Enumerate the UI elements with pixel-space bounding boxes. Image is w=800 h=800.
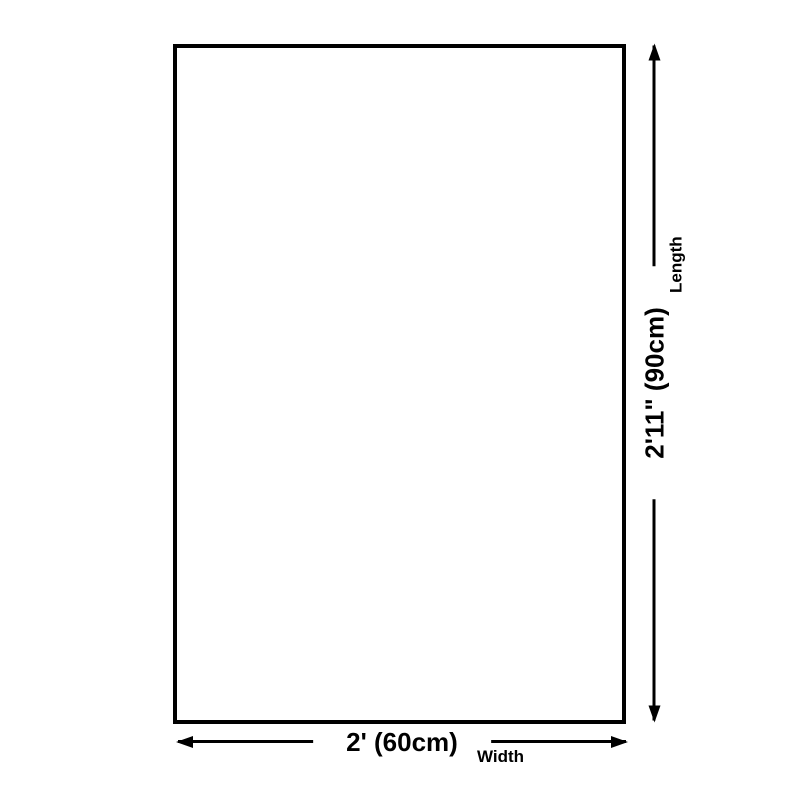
length-dimension-indicator: 2'11" (90cm) Length (639, 43, 679, 722)
width-value: 2' (60cm) (313, 727, 491, 757)
length-value: 2'11" (90cm) (639, 266, 669, 500)
size-diagram: 2'11" (90cm) Length 2' (60cm) Width (0, 0, 800, 800)
arrow-left-icon (176, 736, 193, 748)
product-outline (173, 44, 626, 724)
arrow-up-icon (648, 43, 660, 60)
arrow-right-icon (611, 736, 628, 748)
width-dimension-indicator: 2' (60cm) Width (176, 727, 628, 767)
arrow-down-icon (648, 705, 660, 722)
width-label: Width (477, 748, 524, 765)
length-label: Length (667, 236, 684, 293)
